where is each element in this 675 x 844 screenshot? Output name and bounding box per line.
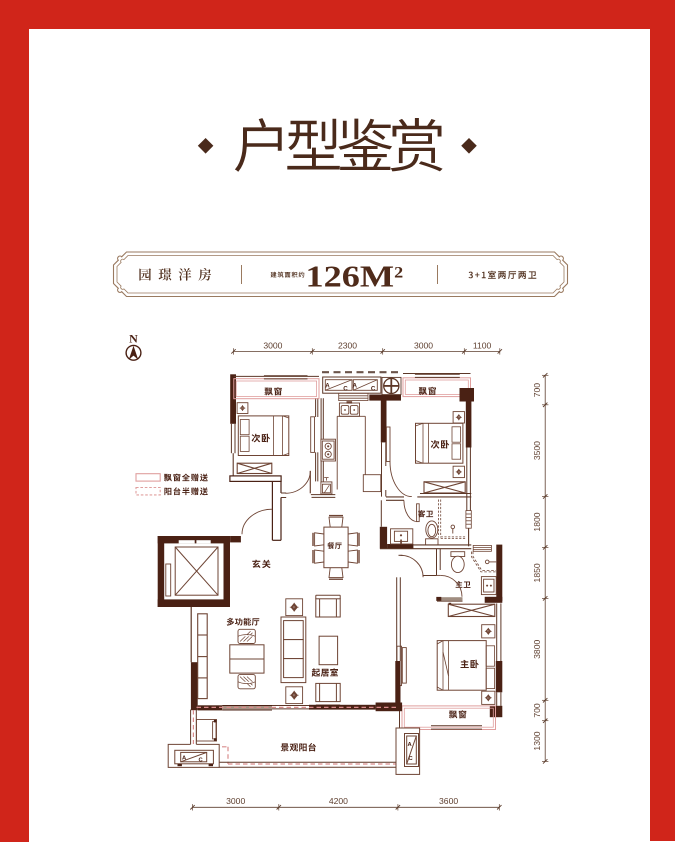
- svg-text:C: C: [371, 385, 376, 392]
- svg-text:A: A: [353, 383, 358, 390]
- svg-text:700: 700: [532, 383, 542, 398]
- svg-text:3600: 3600: [439, 796, 458, 806]
- svg-text:3800: 3800: [532, 640, 542, 659]
- svg-text:1800: 1800: [532, 512, 542, 531]
- svg-text:A: A: [325, 383, 330, 390]
- svg-text:N: N: [129, 332, 138, 346]
- svg-text:1850: 1850: [532, 563, 542, 582]
- svg-text:3000: 3000: [226, 796, 245, 806]
- svg-text:C: C: [343, 385, 348, 392]
- svg-text:4200: 4200: [329, 796, 348, 806]
- svg-text:3000: 3000: [414, 340, 433, 350]
- svg-text:3500: 3500: [532, 441, 542, 460]
- svg-text:2300: 2300: [338, 340, 357, 350]
- svg-text:1300: 1300: [532, 731, 542, 750]
- svg-text:3000: 3000: [263, 340, 282, 350]
- svg-text:1100: 1100: [473, 340, 492, 350]
- svg-text:700: 700: [532, 703, 542, 718]
